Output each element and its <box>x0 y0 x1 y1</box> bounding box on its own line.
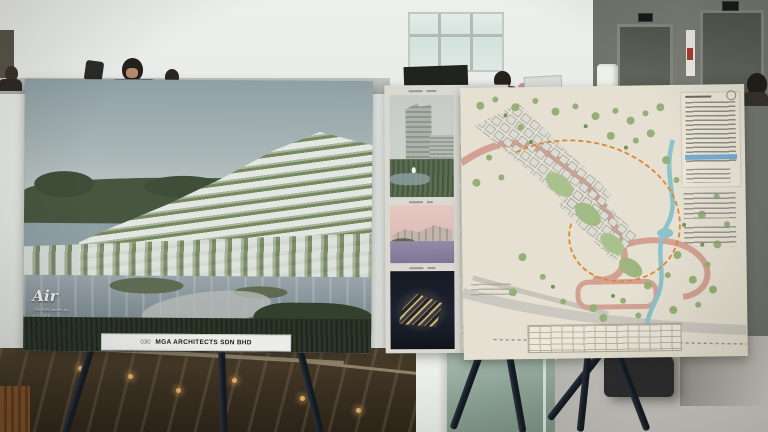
rendering-tower <box>389 95 454 197</box>
wall-sign <box>686 30 695 76</box>
plan-notes-block <box>684 226 736 247</box>
legend-highlighted-item <box>685 154 737 160</box>
duffel-bag <box>604 351 674 397</box>
window-mullion <box>438 14 441 70</box>
wood-slats <box>0 386 30 432</box>
air-logo: Air <box>32 289 57 304</box>
caption-text <box>409 201 433 203</box>
curtain-wall-window <box>408 12 504 72</box>
tower-building <box>405 103 431 165</box>
plan-notes-block <box>471 283 511 298</box>
wetland-pond <box>390 173 430 185</box>
ceiling-light <box>128 374 133 379</box>
ceiling-light <box>232 378 237 383</box>
north-arrow <box>726 90 736 100</box>
elevator-indicator-right <box>722 1 739 11</box>
legend-title <box>685 95 711 97</box>
photo-of-lobby-exhibition: Air The AIR above us in … AIR … 030 MGA … <box>0 0 768 432</box>
caption-text <box>408 90 436 92</box>
glass-reflection <box>0 348 420 432</box>
window-mullion <box>470 14 473 70</box>
area-schedule-table <box>527 323 681 353</box>
elevator-indicator-left <box>638 13 653 22</box>
ceiling-light <box>356 408 361 413</box>
caption-text <box>409 267 435 269</box>
ceiling-light <box>300 396 305 401</box>
entry-number: 030 <box>140 339 150 345</box>
person-1-body <box>0 79 22 91</box>
plan-notes-block <box>684 192 736 219</box>
air-tagline-2: in … AIR … <box>33 313 56 318</box>
rendering-night-aerial <box>390 271 454 349</box>
presentation-board-right <box>460 84 748 360</box>
plan-legend <box>680 91 741 188</box>
purple-plaza <box>390 241 454 263</box>
glass-panel-edge <box>543 349 546 432</box>
presentation-board-left: Air The AIR above us in … AIR … 030 MGA … <box>23 79 373 353</box>
person-6-body <box>742 92 768 106</box>
entry-label-plate: 030 MGA ARCHITECTS SDN BHD <box>101 333 291 351</box>
person-2-face <box>126 68 138 78</box>
firm-name: MGA ARCHITECTS SDN BHD <box>155 339 251 347</box>
ceiling-light <box>176 388 181 393</box>
rendering-dusk-plaza <box>390 205 454 263</box>
air-tagline-1: The AIR above us <box>33 307 68 312</box>
white-column <box>416 343 447 432</box>
egret-bird <box>412 167 416 173</box>
window-mullion <box>410 34 502 37</box>
lower-atrium-through-glass <box>0 348 420 432</box>
tree-canopy <box>34 171 94 197</box>
legend-items <box>686 168 730 183</box>
